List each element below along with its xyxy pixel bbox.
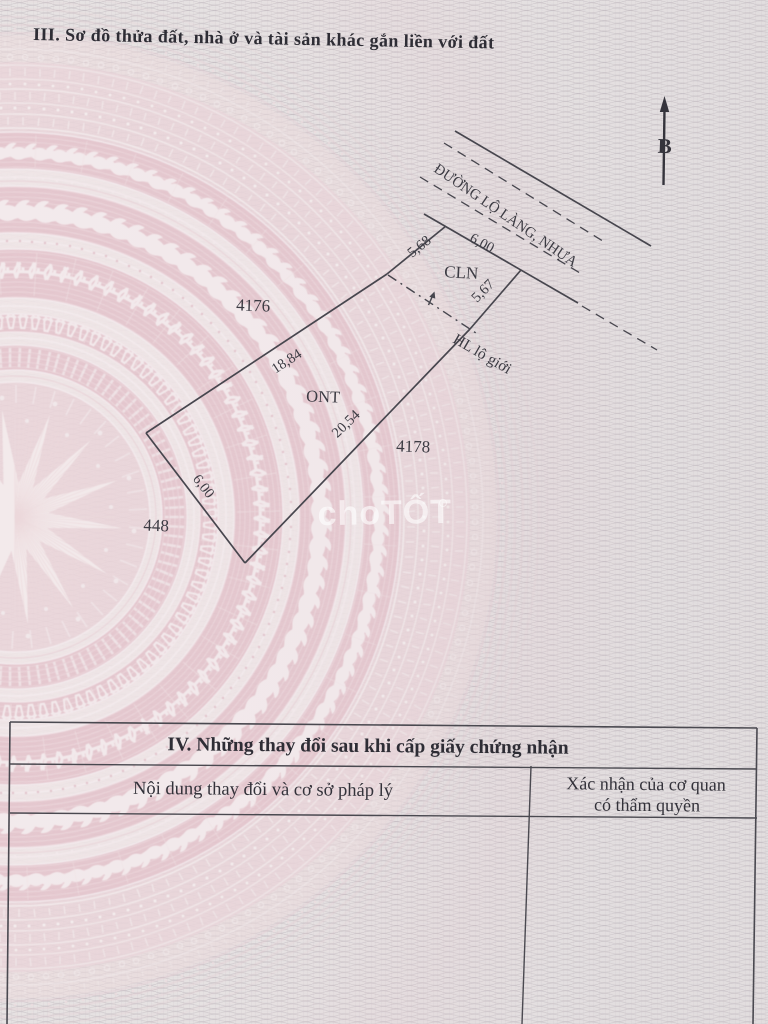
svg-text:B: B [657,134,672,158]
svg-text:có thẩm quyền: có thẩm quyền [594,795,700,816]
svg-text:Nội dung thay đổi và cơ sở phá: Nội dung thay đổi và cơ sở pháp lý [133,779,394,801]
svg-text:IV. Những thay đổi sau khi cấp: IV. Những thay đổi sau khi cấp giấy chứn… [167,734,569,759]
svg-text:448: 448 [143,516,169,536]
svg-text:4176: 4176 [236,295,271,315]
svg-text:choTỐT: choTỐT [317,492,452,533]
svg-text:4178: 4178 [396,436,431,456]
svg-text:CLN: CLN [444,262,479,283]
svg-text:ONT: ONT [306,386,341,406]
svg-text:Xác nhận của cơ quan: Xác nhận của cơ quan [566,773,726,794]
